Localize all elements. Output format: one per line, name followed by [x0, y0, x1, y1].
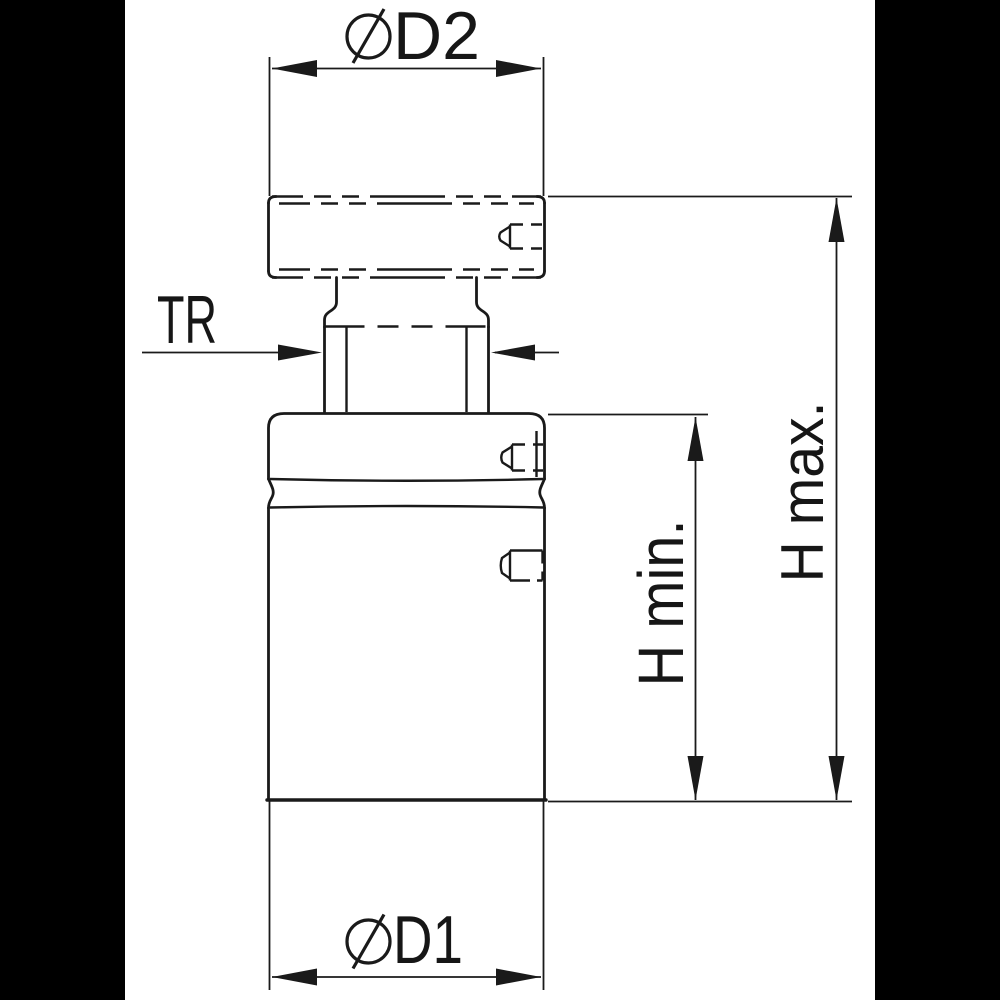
set-screw-body [501, 551, 543, 581]
groove-lower-line [270, 506, 543, 508]
groove-left-pinch [269, 479, 274, 508]
tr-arrowhead-left-icon [278, 345, 322, 361]
groove-upper-line [270, 479, 543, 481]
flange-outline [269, 414, 545, 480]
letterbox-bar-left [0, 0, 125, 1000]
body-flange [269, 414, 545, 480]
set-screw-body-cone-point [501, 553, 510, 579]
d2-label: D2 [393, 0, 480, 74]
tr-label: TR [157, 282, 217, 358]
screw-jack-drawing: D2 [0, 0, 1000, 1000]
tr-arrowhead-right-icon [491, 345, 535, 361]
top-nut [269, 197, 545, 278]
spindle [325, 278, 489, 413]
set-screw-top [499, 225, 542, 249]
h-max-arrowhead-down-icon [829, 756, 845, 800]
dimension-h-min: H min. [548, 415, 708, 801]
set-screw-flange-cone-point [501, 447, 512, 469]
neck-right-profile [477, 278, 489, 328]
groove-right-pinch [540, 479, 545, 508]
dimension-d1: D1 [270, 801, 544, 990]
h-min-arrowhead-down-icon [688, 756, 704, 800]
dimension-d2: D2 [270, 0, 544, 196]
h-max-arrowhead-up-icon [829, 198, 845, 242]
h-min-arrowhead-up-icon [688, 417, 704, 461]
set-screw-top-cone-point [499, 227, 510, 247]
d2-arrowhead-left-icon [272, 60, 317, 77]
technical-drawing-page: D2 [0, 0, 1000, 1000]
body-groove [269, 479, 545, 508]
d2-arrowhead-right-icon [496, 60, 541, 77]
d1-label: D1 [393, 902, 463, 978]
main-body [267, 508, 546, 800]
neck-left-profile [325, 278, 337, 328]
dimension-h-max: H max. [548, 197, 852, 802]
d1-arrowhead-right-icon [496, 969, 541, 986]
h-min-label: H min. [625, 520, 697, 687]
letterbox-bar-right [875, 0, 1000, 1000]
d1-arrowhead-left-icon [272, 969, 317, 986]
h-max-label: H max. [769, 402, 836, 583]
dimension-tr: TR [142, 282, 559, 361]
